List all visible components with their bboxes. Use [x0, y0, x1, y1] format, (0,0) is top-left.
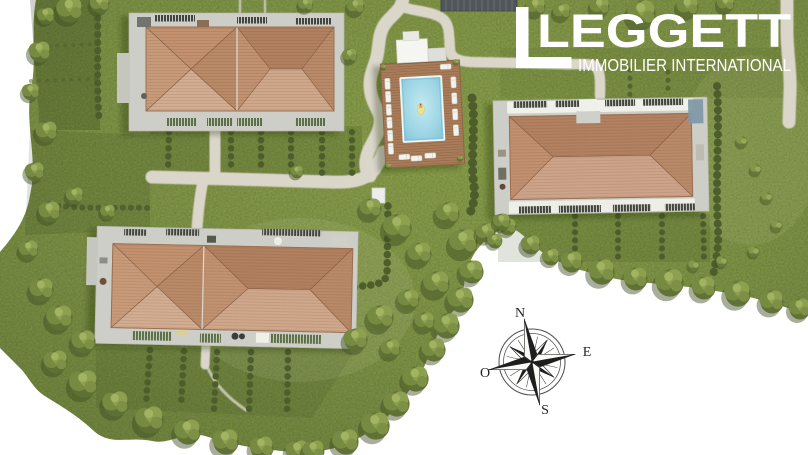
terrace-furniture	[498, 150, 506, 157]
terrace-furniture	[141, 93, 147, 99]
lounger	[451, 93, 457, 104]
rooftop-chimney	[137, 17, 151, 27]
hipped-roof	[146, 27, 334, 111]
entrance-bay	[579, 99, 597, 111]
compass-label-east: E	[583, 345, 592, 360]
building-c	[85, 225, 358, 349]
compass-rose	[481, 311, 583, 413]
building-a	[117, 13, 344, 131]
compass-label-west: O	[480, 366, 490, 381]
terrace-furniture	[207, 236, 216, 243]
terrace-extension	[86, 237, 98, 285]
lounger	[388, 143, 394, 154]
hipped-roof	[509, 113, 692, 199]
lounger	[385, 91, 391, 102]
logo-tagline: IMMOBILIER INTERNATIONAL	[578, 55, 791, 75]
brand-logo: LEGGETT IMMOBILIER INTERNATIONAL	[516, 4, 791, 75]
compass-label-south: S	[541, 403, 549, 418]
terrace-door	[256, 333, 269, 343]
lounger	[452, 109, 458, 120]
terrace-furniture	[331, 235, 347, 246]
building-b	[493, 97, 709, 215]
carport	[441, 0, 517, 11]
lounger	[399, 154, 410, 160]
lounger	[386, 104, 392, 115]
aerial-site-plan: N E O S LEGGETT IMMOBILIER INTERNATIONAL	[0, 0, 808, 455]
compass-label-north: N	[515, 306, 525, 321]
lounger	[385, 78, 391, 89]
lounger	[451, 77, 457, 88]
lounger	[387, 117, 393, 128]
lounger	[453, 125, 459, 136]
path-leg-down	[197, 180, 203, 229]
lounger	[387, 130, 393, 141]
lounger	[440, 64, 451, 70]
terrace-furniture	[197, 20, 209, 27]
pergola-blue	[688, 99, 703, 123]
lounger	[411, 155, 422, 161]
logo-wordmark: LEGGETT	[537, 4, 791, 57]
entrance-bay	[576, 111, 600, 123]
terrace-extension	[117, 53, 129, 103]
lounger	[425, 153, 436, 159]
hipped-roof	[111, 244, 353, 333]
terrace-furniture	[696, 144, 704, 160]
patio-table	[273, 236, 282, 245]
terrace-furniture	[99, 257, 107, 263]
terrace-furniture	[498, 168, 506, 180]
